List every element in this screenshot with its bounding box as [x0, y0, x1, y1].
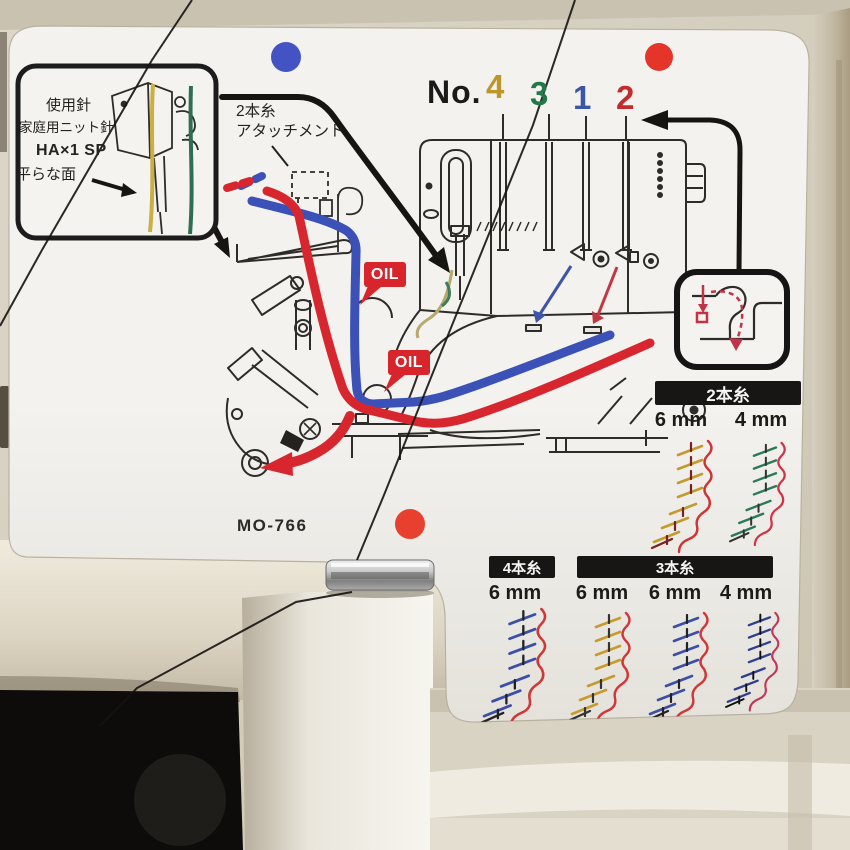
left-edge-shadow	[0, 32, 7, 152]
two-thread-bar: 2本糸	[655, 381, 801, 405]
needle-box-line-3: HA×1 SP	[36, 141, 107, 160]
metal-clip	[326, 560, 434, 598]
panel-artwork	[0, 0, 850, 850]
front-pillar	[242, 592, 433, 850]
model-number: MO-766	[237, 516, 307, 536]
two-thread-width-1: 6 mm	[650, 408, 712, 432]
needle-box-line-2: 家庭用ニット針	[19, 120, 114, 136]
sewing-machine-threading-panel-photo: No. 4 3 1 2 使用針 家庭用ニット針 HA×1 SP 平らな面 2本糸…	[0, 0, 850, 850]
three-thread-bar: 3本糸	[577, 556, 773, 578]
body-ridge	[430, 761, 850, 818]
green-thread	[190, 86, 192, 234]
three-thread-width-2: 6 mm	[646, 581, 704, 605]
red-indicator-dot-top	[645, 43, 673, 71]
three-thread-width-3: 4 mm	[716, 581, 776, 605]
oil-tag-lower: OIL	[388, 354, 430, 372]
thread-number-label: No.	[427, 73, 482, 111]
needle-box-line-1: 使用針	[46, 97, 91, 115]
three-thread-width-1: 6 mm	[573, 581, 631, 605]
attachment-label-line-1: 2本糸	[236, 102, 345, 122]
four-thread-width-1: 6 mm	[486, 581, 544, 605]
two-thread-width-2: 4 mm	[730, 408, 792, 432]
blue-indicator-dot	[271, 42, 301, 72]
four-thread-bar: 4本糸	[489, 556, 555, 578]
thread-number-1: 1	[573, 78, 591, 118]
red-indicator-dot-mid	[395, 509, 425, 539]
yellow-thread	[150, 84, 153, 232]
attachment-label: 2本糸 アタッチメント	[236, 102, 345, 142]
oil-tag-upper: OIL	[364, 266, 406, 284]
thread-number-2: 2	[616, 78, 634, 118]
looper-detail-box	[677, 272, 787, 367]
thread-number-4: 4	[486, 67, 504, 107]
attachment-label-line-2: アタッチメント	[236, 122, 345, 142]
thread-number-3: 3	[530, 74, 548, 114]
needle-box-line-4: 平らな面	[16, 166, 76, 184]
left-edge-notch	[0, 386, 9, 448]
